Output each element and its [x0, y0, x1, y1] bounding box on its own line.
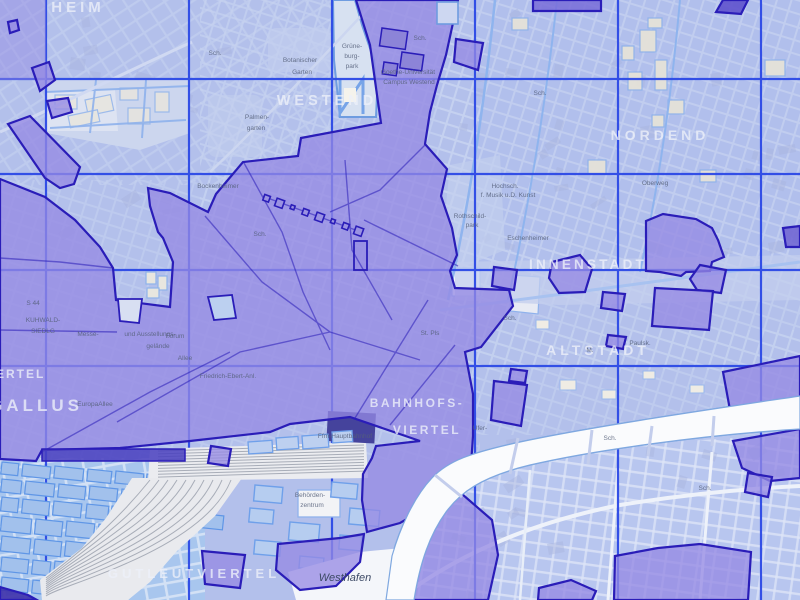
svg-text:gelände: gelände [146, 343, 170, 350]
svg-text:Paulsk.: Paulsk. [629, 340, 651, 347]
svg-text:Sch.: Sch. [533, 90, 546, 97]
svg-text:park: park [346, 63, 359, 70]
svg-text:IERTEL: IERTEL [0, 367, 45, 381]
svg-text:Behörden-: Behörden- [295, 492, 325, 499]
svg-text:St. Pls: St. Pls [421, 330, 441, 337]
svg-text:park: park [466, 222, 479, 229]
svg-text:burg-: burg- [344, 53, 359, 60]
svg-text:Ufer-: Ufer- [473, 425, 487, 432]
svg-text:Sch.: Sch. [208, 50, 221, 57]
svg-text:garten: garten [247, 125, 266, 132]
svg-text:Westhafen: Westhafen [319, 572, 371, 584]
svg-text:Eschenheimer: Eschenheimer [507, 235, 549, 242]
svg-text:Oberweg: Oberweg [642, 180, 669, 187]
svg-text:Campus Westend: Campus Westend [383, 79, 435, 86]
svg-text:M.: M. [586, 347, 593, 354]
svg-text:f. Musik u.D. Kunst: f. Musik u.D. Kunst [481, 192, 536, 199]
svg-text:Messe-: Messe- [77, 331, 98, 338]
svg-text:S 44: S 44 [26, 300, 40, 307]
svg-text:SIEDLG: SIEDLG [31, 328, 55, 335]
svg-text:GALLUS: GALLUS [0, 396, 83, 415]
svg-text:KUHWALD-: KUHWALD- [26, 317, 60, 324]
svg-text:Goethe-Universität: Goethe-Universität [381, 69, 435, 76]
svg-text:Sch.: Sch. [698, 485, 711, 492]
svg-text:zentrum: zentrum [300, 502, 323, 509]
svg-text:GUTLEUTVIERTEL: GUTLEUTVIERTEL [108, 566, 280, 581]
svg-text:BAHNHOFS-: BAHNHOFS- [370, 396, 465, 410]
svg-text:HEIM: HEIM [51, 0, 105, 16]
svg-text:Bockenheimer: Bockenheimer [197, 183, 239, 190]
svg-text:Allee: Allee [178, 355, 193, 362]
svg-text:Hochsch.: Hochsch. [491, 183, 518, 190]
svg-text:INNENSTADT: INNENSTADT [529, 257, 647, 272]
svg-text:Palmen-: Palmen- [245, 114, 269, 121]
svg-text:Friedrich-Ebert-Anl.: Friedrich-Ebert-Anl. [200, 373, 257, 380]
svg-text:WESTEND: WESTEND [277, 93, 378, 109]
svg-text:Garten: Garten [292, 69, 312, 76]
svg-text:Forum: Forum [166, 333, 185, 340]
svg-text:Sch.: Sch. [413, 35, 426, 42]
svg-text:EuropaAllee: EuropaAllee [77, 401, 113, 408]
svg-text:Ffm-Hauptbahnhof: Ffm-Hauptbahnhof [318, 433, 372, 440]
svg-text:Rothschild-: Rothschild- [454, 213, 487, 220]
svg-text:Sch.: Sch. [603, 435, 616, 442]
svg-text:Grüne-: Grüne- [342, 43, 362, 50]
svg-text:VIERTEL: VIERTEL [393, 423, 461, 437]
svg-text:Sch.: Sch. [253, 231, 266, 238]
svg-text:Sch.: Sch. [503, 315, 516, 322]
svg-text:NORDEND: NORDEND [611, 127, 710, 143]
svg-text:Botanischer: Botanischer [283, 57, 318, 64]
